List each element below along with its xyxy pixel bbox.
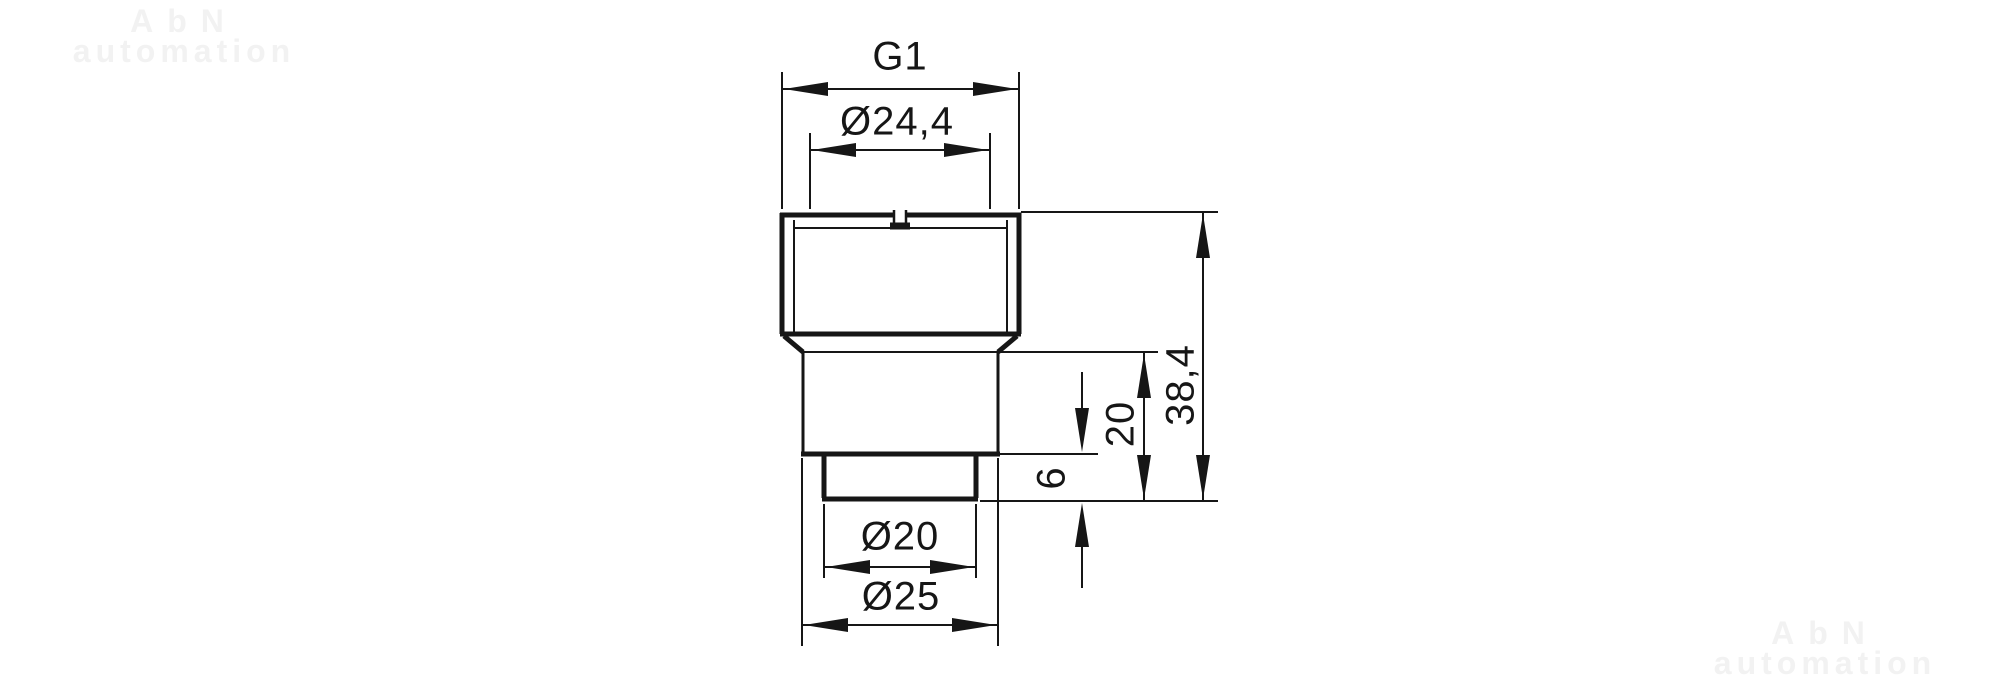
arrowhead-left	[826, 560, 870, 574]
label-spigot-height: 6	[1030, 466, 1075, 489]
label-total-height: 38,4	[1159, 344, 1204, 426]
arrowhead-right	[944, 143, 988, 157]
arrowhead-up	[1196, 214, 1210, 258]
arrowhead-up	[1075, 503, 1089, 547]
arrowhead-up	[1137, 354, 1151, 398]
chamfer-right	[998, 336, 1017, 352]
arrowhead-right	[952, 618, 996, 632]
label-spigot-diameter: Ø20	[861, 515, 940, 560]
arrowhead-left	[812, 143, 856, 157]
label-thread: G1	[872, 35, 927, 80]
arrowhead-down	[1075, 408, 1089, 452]
arrowhead-down	[1196, 455, 1210, 499]
chamfer-left	[784, 336, 803, 352]
technical-drawing	[0, 0, 2000, 679]
arrowhead-right	[973, 82, 1017, 96]
label-lower-height: 20	[1099, 401, 1144, 448]
arrowhead-left	[784, 82, 828, 96]
label-collar-diameter: Ø25	[862, 575, 941, 620]
drawing-canvas: AbN automation AbN automation	[0, 0, 2000, 679]
arrowhead-left	[804, 618, 848, 632]
part-outline	[780, 208, 1021, 499]
arrowhead-down	[1137, 455, 1151, 499]
slot-gap	[894, 208, 906, 224]
arrowhead-right	[930, 560, 974, 574]
label-bore-diameter: Ø24,4	[840, 100, 954, 145]
